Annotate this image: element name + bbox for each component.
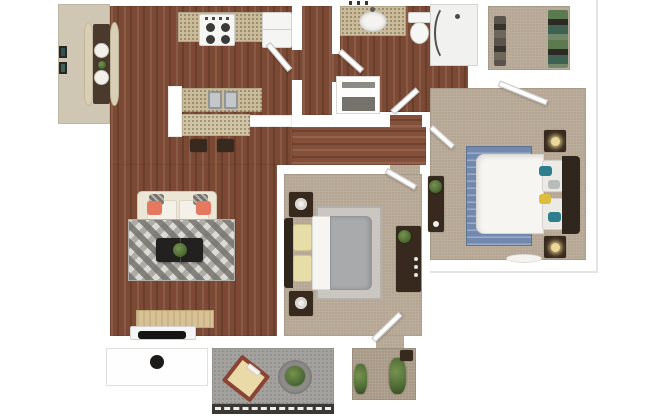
- stove-knobs: [205, 17, 231, 20]
- shower-glass-curve: [434, 4, 462, 62]
- bedroom2-decor-bowl: [295, 297, 307, 309]
- refrigerator-seam: [263, 29, 291, 30]
- bedroom2-duvet-gray: [330, 216, 372, 290]
- stove-burner: [221, 23, 230, 32]
- linen-shelf-slot: [342, 82, 375, 88]
- wall-art-frame: [59, 46, 67, 58]
- bedroom2-pillow-cream: [293, 224, 312, 251]
- sink-basin-right: [224, 91, 238, 109]
- vanity-sink: [359, 11, 387, 32]
- flat-tv: [138, 331, 186, 339]
- range-stove: [199, 14, 235, 46]
- table-centerpiece-plant: [98, 61, 106, 69]
- master-cushion-gray: [548, 180, 560, 189]
- sofa-pillow-coral-right: [196, 201, 211, 215]
- coffee-table-plant: [173, 243, 187, 257]
- master-bed-duvet: [476, 154, 544, 234]
- banquette-bench-left: [84, 22, 93, 106]
- hanging-clothes-right: [548, 10, 568, 68]
- bedroom2-dresser-knob: [414, 257, 418, 261]
- bathroom-hall-opening: [390, 115, 422, 127]
- closet-storage-box: [400, 350, 413, 361]
- master-cushion-yellow: [539, 194, 551, 204]
- bedroom2-dresser-knob: [414, 273, 418, 277]
- closet-plant-right: [389, 358, 406, 394]
- corridor-floor: [302, 6, 332, 115]
- outer-wall-edge-right: [596, 0, 598, 273]
- bar-stool: [217, 139, 234, 152]
- hall-wall: [247, 115, 292, 127]
- entry-door-knob: [150, 355, 164, 369]
- banquette-bench-right: [110, 22, 119, 106]
- place-setting-plate: [94, 43, 109, 58]
- closet-shelf-items-left: [494, 16, 506, 66]
- bedroom2-pillow-cream: [293, 255, 312, 282]
- kitchen-door-opening: [292, 50, 302, 80]
- master-lamp-south: [551, 243, 560, 252]
- bedroom2-closet-opening: [376, 336, 404, 348]
- floor-plan: [0, 0, 652, 416]
- master-floor-mat: [506, 254, 542, 263]
- outer-wall-edge-bottom: [430, 271, 598, 273]
- sink-faucet: [370, 7, 375, 12]
- hallway-floor: [292, 127, 426, 165]
- master-headboard: [562, 156, 580, 234]
- breakfast-bar: [182, 114, 250, 136]
- master-cushion-teal: [539, 166, 552, 176]
- refrigerator: [262, 12, 292, 48]
- place-setting-plate: [94, 70, 109, 85]
- wall-art-frame: [59, 62, 67, 74]
- bar-stool: [190, 139, 207, 152]
- linen-closet: [336, 76, 380, 114]
- kitchen-stub-wall: [168, 86, 182, 137]
- kitchen-counter-sink: [182, 88, 262, 112]
- stove-burner: [206, 23, 215, 32]
- bedroom2-decor-bowl: [295, 198, 307, 210]
- master-dresser-plant: [429, 180, 442, 193]
- closet-plant-left: [354, 364, 367, 394]
- stove-burner: [206, 35, 215, 44]
- stove-burner: [221, 35, 230, 44]
- vanity-bottles: [349, 1, 371, 5]
- sink-basin-left: [208, 91, 222, 109]
- master-dresser-vase: [433, 221, 439, 227]
- patio-plant: [285, 366, 305, 386]
- shower-head: [455, 14, 460, 19]
- patio-railing-balusters: [215, 407, 331, 410]
- bedroom2-dresser-plant: [398, 230, 411, 243]
- toilet-bowl: [410, 22, 429, 44]
- bedroom2-headboard: [284, 218, 293, 288]
- patio-railing: [212, 404, 334, 414]
- sofa-pillow-coral-left: [147, 201, 162, 215]
- master-lamp-north: [551, 137, 560, 146]
- bedroom2-dresser-knob: [414, 265, 418, 269]
- master-cushion-teal: [548, 212, 561, 222]
- linen-shelf-slot: [342, 97, 375, 111]
